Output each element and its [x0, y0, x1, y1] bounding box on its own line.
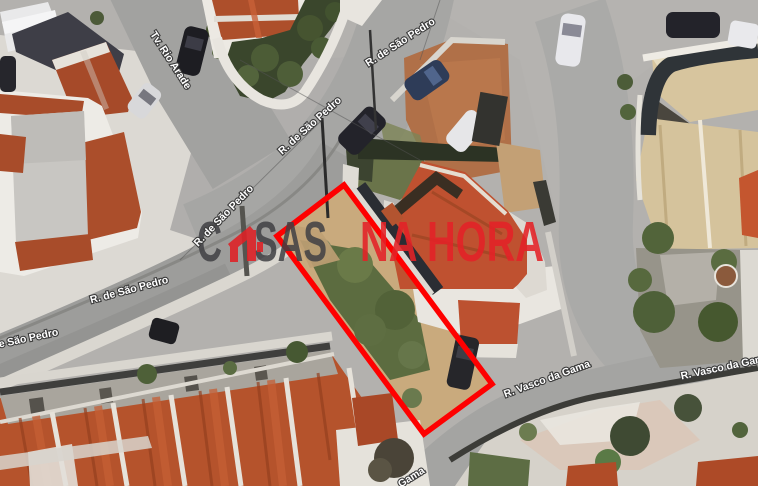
svg-text:SAS: SAS [254, 210, 327, 274]
svg-text:NA HORA: NA HORA [360, 210, 544, 274]
